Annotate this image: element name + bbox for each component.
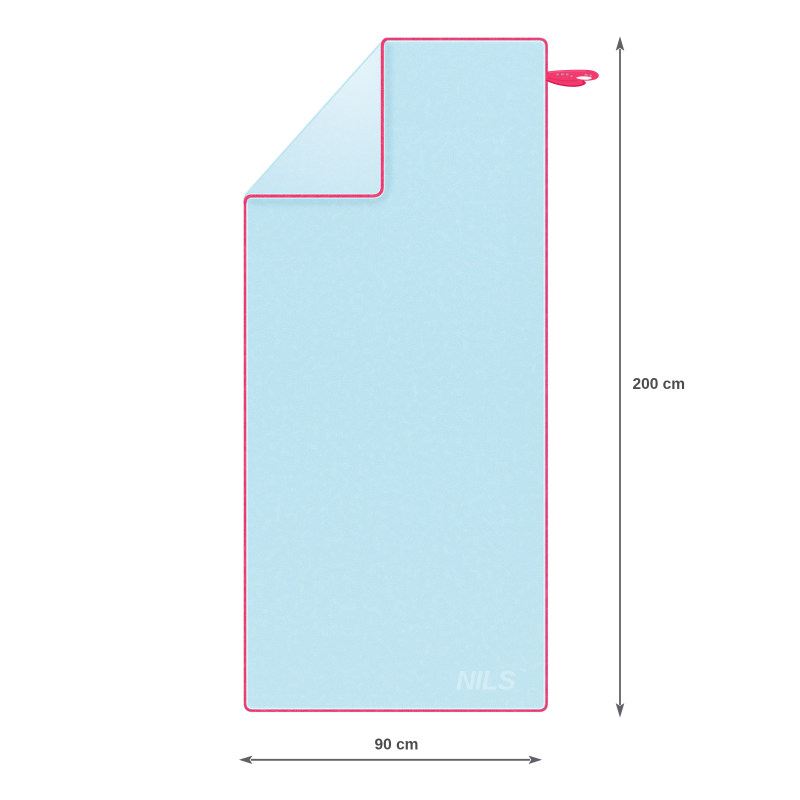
svg-text:200 cm: 200 cm xyxy=(633,376,686,393)
svg-text:90 cm: 90 cm xyxy=(375,737,419,754)
